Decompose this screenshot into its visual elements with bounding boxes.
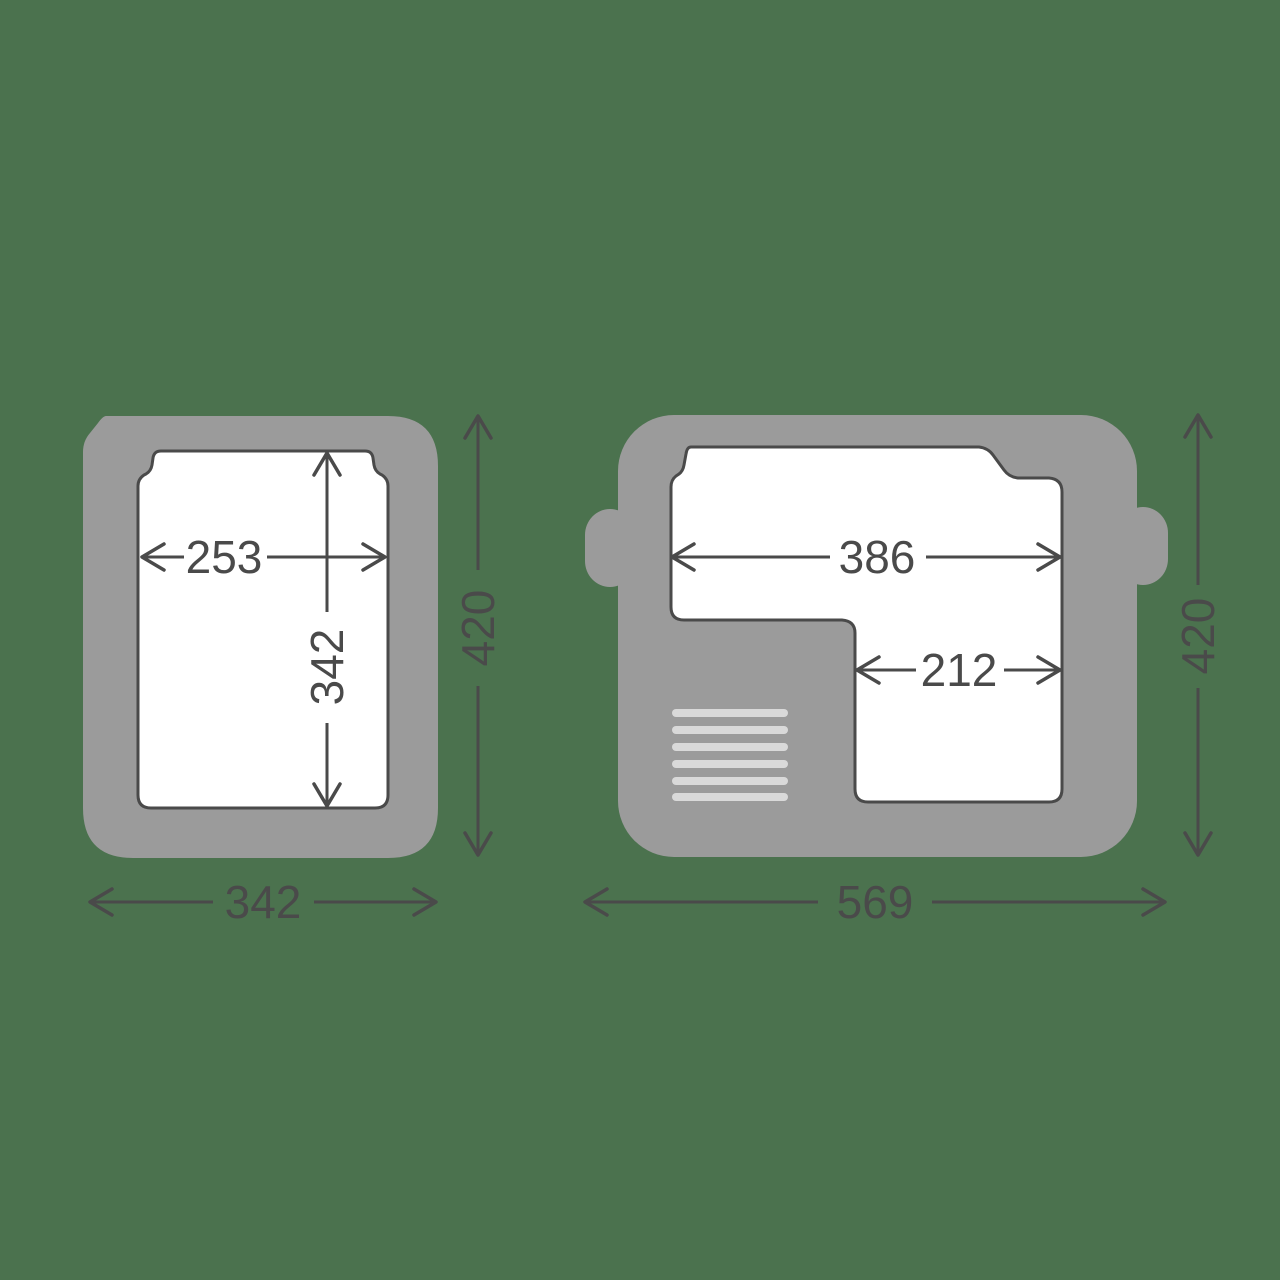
dim-label-overall-height: 420 <box>452 590 504 667</box>
dimension-diagram: 253 342 420 342 <box>0 0 1280 1280</box>
dim-label-overall-width: 569 <box>837 876 914 928</box>
dim-label-inner-depth: 342 <box>301 629 353 706</box>
dim-label-inner-width: 253 <box>186 531 263 583</box>
vent-stripe <box>672 709 788 717</box>
vent-stripe <box>672 743 788 751</box>
dim-label-overall-width: 342 <box>225 876 302 928</box>
dim-label-lower-inner-width: 212 <box>921 644 998 696</box>
dim-label-overall-height: 420 <box>1172 598 1224 675</box>
vent-stripe <box>672 777 788 785</box>
vent-stripe <box>672 760 788 768</box>
vent-stripe <box>672 793 788 801</box>
dim-label-upper-inner-width: 386 <box>839 531 916 583</box>
vent-stripe <box>672 726 788 734</box>
